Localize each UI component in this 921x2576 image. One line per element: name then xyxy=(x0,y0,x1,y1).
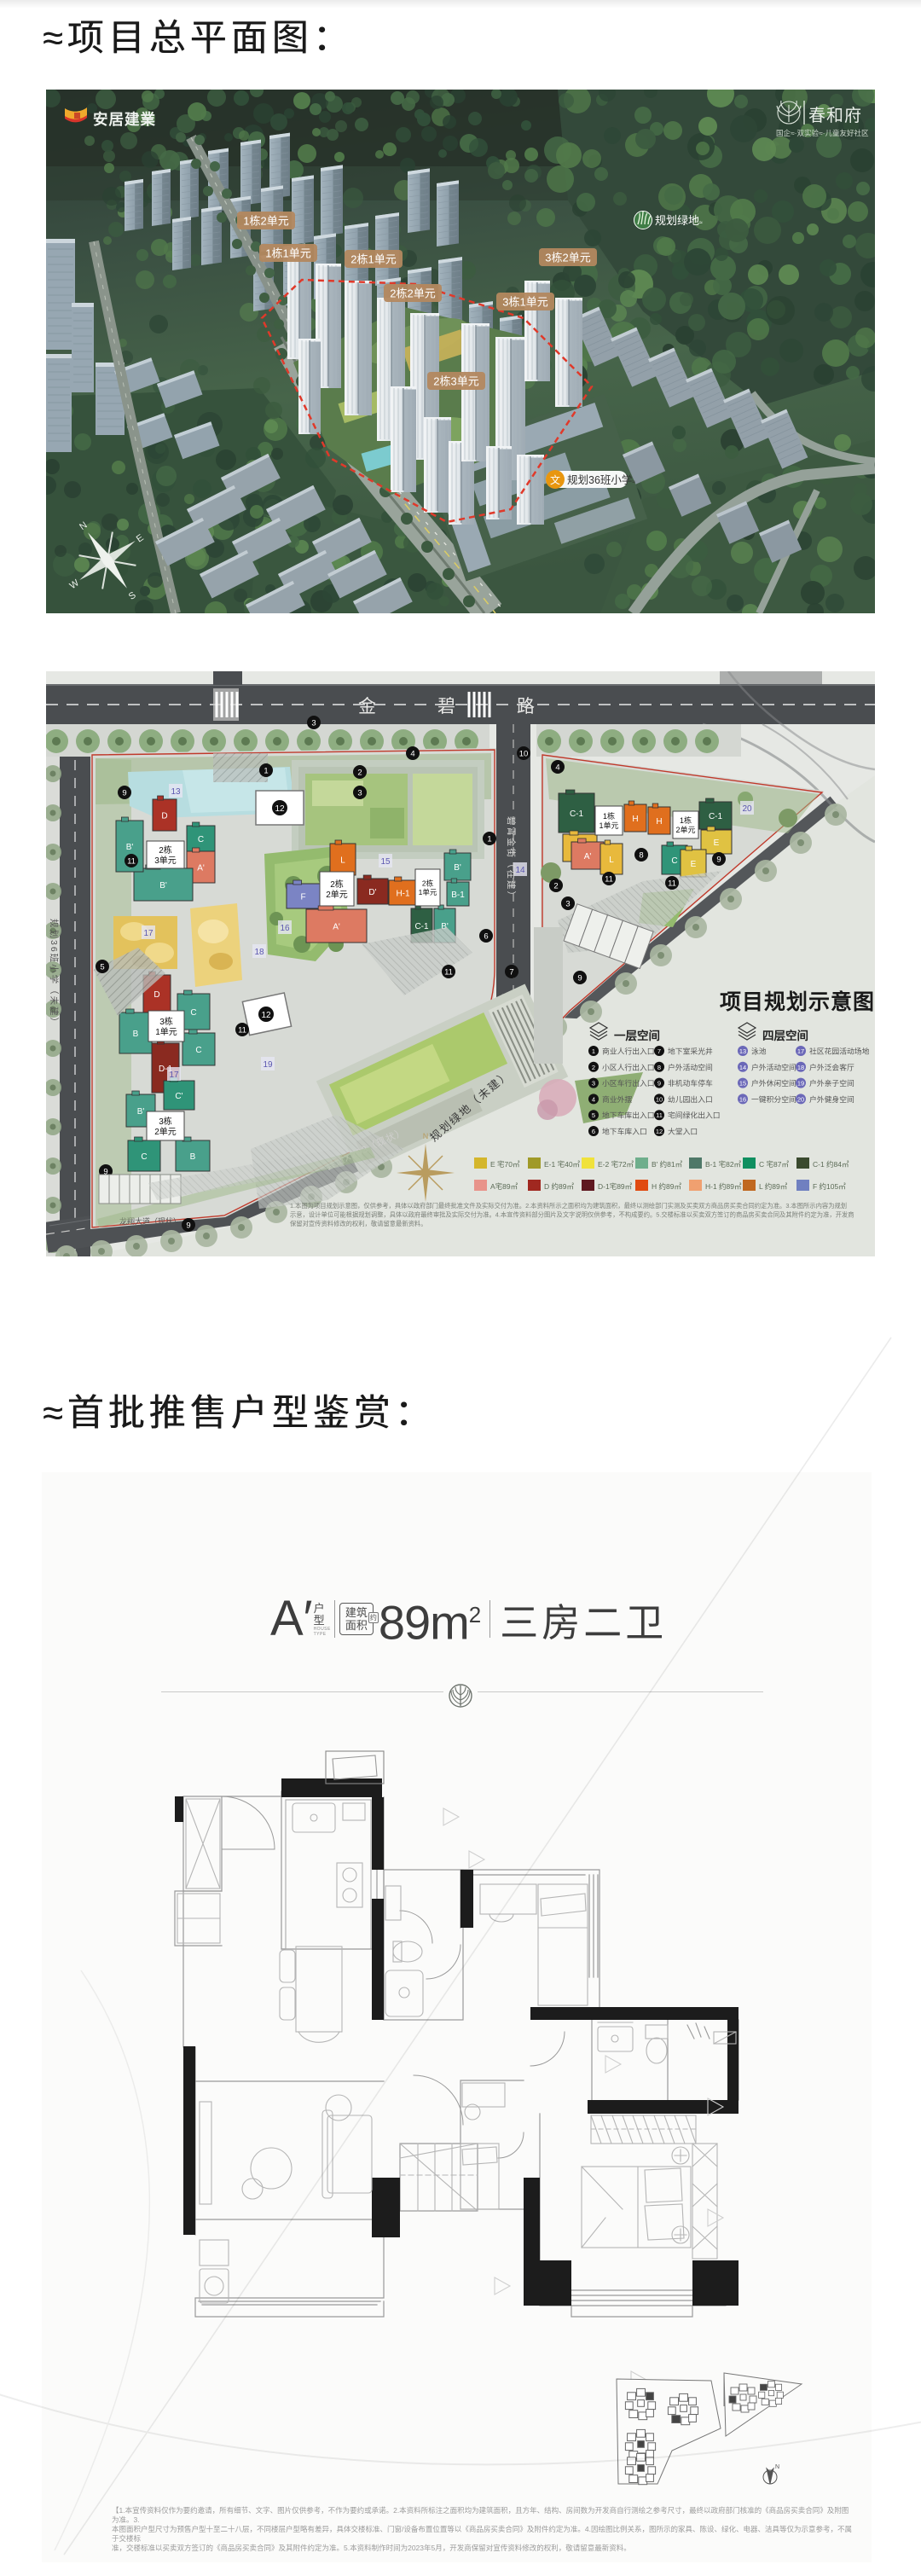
svg-text:E: E xyxy=(691,860,697,869)
svg-text:C-1: C-1 xyxy=(709,812,723,821)
svg-text:4: 4 xyxy=(592,1095,595,1103)
svg-text:1栋1单元: 1栋1单元 xyxy=(265,247,310,260)
svg-text:18: 18 xyxy=(797,1064,804,1071)
svg-text:D 约89㎡: D 约89㎡ xyxy=(544,1182,574,1191)
svg-text:A': A' xyxy=(333,923,340,932)
svg-text:D': D' xyxy=(368,888,376,897)
svg-text:国企≈·双实验≈·儿童友好社区: 国企≈·双实验≈·儿童友好社区 xyxy=(776,129,869,137)
svg-text:安居建業: 安居建業 xyxy=(93,111,156,128)
svg-text:地下室采光井: 地下室采光井 xyxy=(668,1047,713,1056)
svg-text:H-1: H-1 xyxy=(396,890,410,899)
svg-text:16: 16 xyxy=(739,1095,746,1103)
svg-text:规划36班小学（未建）: 规划36班小学（未建） xyxy=(49,919,60,1028)
svg-text:H 约89㎡: H 约89㎡ xyxy=(652,1182,681,1191)
svg-text:大堂入口: 大堂入口 xyxy=(668,1127,698,1136)
svg-text:17: 17 xyxy=(169,1070,179,1080)
svg-text:3栋1单元: 3栋1单元 xyxy=(502,296,547,309)
svg-text:户外泛会客厅: 户外泛会客厅 xyxy=(809,1062,854,1071)
svg-text:2栋: 2栋 xyxy=(330,879,344,890)
svg-text:B': B' xyxy=(137,1107,145,1117)
svg-text:一键积分空间: 一键积分空间 xyxy=(751,1094,796,1104)
svg-text:春和府: 春和府 xyxy=(808,106,862,125)
svg-text:E: E xyxy=(714,838,720,848)
svg-text:小区人行出入口: 小区人行出入口 xyxy=(602,1062,655,1071)
svg-text:3: 3 xyxy=(311,719,316,728)
svg-text:1栋: 1栋 xyxy=(603,811,615,821)
svg-text:户外健身空间: 户外健身空间 xyxy=(809,1094,854,1104)
svg-text:D: D xyxy=(161,812,167,821)
svg-text:2单元: 2单元 xyxy=(154,1127,177,1137)
svg-text:2: 2 xyxy=(553,882,558,891)
svg-text:12: 12 xyxy=(261,1011,271,1020)
svg-text:1栋2单元: 1栋2单元 xyxy=(243,215,288,228)
svg-text:C: C xyxy=(198,835,204,844)
svg-text:13: 13 xyxy=(739,1047,746,1055)
svg-text:B-1 宅82㎡: B-1 宅82㎡ xyxy=(705,1160,742,1169)
svg-text:1单元: 1单元 xyxy=(599,821,618,830)
svg-text:小区车行出入口: 小区车行出入口 xyxy=(602,1078,655,1088)
svg-text:8: 8 xyxy=(639,851,643,861)
svg-text:1: 1 xyxy=(264,767,268,776)
svg-text:B': B' xyxy=(126,843,134,852)
svg-text:一层空间: 一层空间 xyxy=(614,1029,660,1042)
svg-text:3栋: 3栋 xyxy=(159,1016,173,1027)
svg-text:20: 20 xyxy=(797,1095,804,1103)
svg-text:1单元: 1单元 xyxy=(155,1027,177,1037)
svg-text:文: 文 xyxy=(550,473,560,486)
svg-text:4: 4 xyxy=(410,750,414,759)
svg-text:B' 约81㎡: B' 约81㎡ xyxy=(652,1160,683,1169)
svg-text:B': B' xyxy=(454,863,461,873)
svg-text:9: 9 xyxy=(186,1221,190,1231)
svg-text:11: 11 xyxy=(668,879,676,889)
svg-text:D-1宅89㎡: D-1宅89㎡ xyxy=(598,1182,633,1191)
svg-text:19: 19 xyxy=(263,1060,273,1070)
svg-text:16: 16 xyxy=(280,924,290,933)
svg-text:6: 6 xyxy=(484,932,488,942)
svg-text:A宅89㎡: A宅89㎡ xyxy=(490,1182,518,1191)
svg-text:2栋: 2栋 xyxy=(159,844,172,856)
svg-text:L: L xyxy=(340,856,345,866)
svg-text:N: N xyxy=(423,1132,429,1140)
svg-text:幼儿园出入口: 幼儿园出入口 xyxy=(668,1094,713,1104)
svg-text:泳池: 泳池 xyxy=(751,1047,767,1056)
svg-text:8: 8 xyxy=(657,1064,661,1071)
svg-text:户外休闲空间: 户外休闲空间 xyxy=(751,1078,796,1088)
svg-text:地下车库入口: 地下车库入口 xyxy=(602,1127,647,1136)
svg-text:9: 9 xyxy=(657,1080,661,1088)
svg-text:17: 17 xyxy=(143,929,153,938)
svg-text:C: C xyxy=(190,1008,196,1018)
svg-text:四层空间: 四层空间 xyxy=(762,1029,808,1042)
svg-text:地下车库出入口: 地下车库出入口 xyxy=(602,1111,655,1120)
svg-text:2: 2 xyxy=(357,769,362,778)
svg-text:15: 15 xyxy=(739,1080,746,1088)
svg-text:H: H xyxy=(656,817,662,827)
svg-text:12: 12 xyxy=(275,804,285,814)
svg-text:3: 3 xyxy=(357,789,362,798)
svg-text:12: 12 xyxy=(656,1128,663,1135)
svg-text:14: 14 xyxy=(515,866,525,875)
svg-text:C-1: C-1 xyxy=(570,809,584,819)
svg-text:规划36班小学≈: 规划36班小学≈ xyxy=(567,473,635,486)
svg-text:1栋: 1栋 xyxy=(680,815,692,825)
svg-text:A': A' xyxy=(197,864,205,873)
svg-text:11: 11 xyxy=(605,875,613,885)
svg-text:金碧路: 金碧路 xyxy=(358,697,596,717)
svg-text:C': C' xyxy=(175,1092,182,1101)
svg-text:1: 1 xyxy=(487,835,491,844)
svg-text:B: B xyxy=(190,1152,196,1162)
svg-text:18: 18 xyxy=(254,948,264,957)
svg-text:1: 1 xyxy=(592,1047,595,1055)
svg-text:户外活动空间: 户外活动空间 xyxy=(751,1062,796,1071)
svg-text:户外活动空间: 户外活动空间 xyxy=(668,1062,713,1071)
svg-text:9: 9 xyxy=(122,789,126,798)
svg-text:B: B xyxy=(133,1030,139,1039)
svg-text:A': A' xyxy=(584,852,592,862)
svg-text:C: C xyxy=(671,856,677,866)
svg-text:2: 2 xyxy=(592,1064,595,1071)
svg-text:H: H xyxy=(632,815,638,824)
svg-text:4: 4 xyxy=(555,763,559,773)
svg-text:商业人行出入口: 商业人行出入口 xyxy=(602,1047,655,1056)
svg-text:6: 6 xyxy=(592,1128,595,1135)
svg-text:5: 5 xyxy=(592,1111,595,1119)
svg-text:户外亲子空间: 户外亲子空间 xyxy=(809,1078,854,1088)
svg-text:2栋: 2栋 xyxy=(422,879,434,888)
svg-text:L: L xyxy=(609,856,614,865)
svg-text:商业外摆: 商业外摆 xyxy=(602,1094,632,1104)
svg-text:15: 15 xyxy=(380,857,391,867)
svg-text:13: 13 xyxy=(171,787,181,797)
svg-text:17: 17 xyxy=(797,1047,804,1055)
svg-text:1单元: 1单元 xyxy=(419,888,437,896)
svg-text:B': B' xyxy=(159,881,167,891)
svg-text:F: F xyxy=(300,893,305,902)
svg-text:2单元: 2单元 xyxy=(675,825,695,834)
svg-text:3: 3 xyxy=(565,900,570,909)
svg-text:非机动车停车: 非机动车停车 xyxy=(668,1078,713,1088)
svg-text:C: C xyxy=(195,1046,201,1055)
svg-text:11: 11 xyxy=(238,1026,246,1036)
svg-text:10: 10 xyxy=(519,750,529,759)
svg-text:F 约105㎡: F 约105㎡ xyxy=(813,1182,846,1191)
svg-text:D: D xyxy=(153,990,159,1000)
svg-text:2单元: 2单元 xyxy=(326,890,348,900)
svg-text:保留对宣传资料修改的权利，敬请留意最新资料。: 保留对宣传资料修改的权利，敬请留意最新资料。 xyxy=(290,1220,427,1227)
svg-text:E 宅70㎡: E 宅70㎡ xyxy=(490,1160,520,1169)
svg-text:宅间绿化出入口: 宅间绿化出入口 xyxy=(668,1111,721,1120)
svg-text:11: 11 xyxy=(656,1111,663,1119)
svg-text:7: 7 xyxy=(509,968,513,978)
svg-text:L 约89㎡: L 约89㎡ xyxy=(759,1182,788,1191)
svg-text:C: C xyxy=(141,1152,147,1162)
svg-text:2栋3单元: 2栋3单元 xyxy=(433,375,478,388)
svg-text:2栋1单元: 2栋1单元 xyxy=(350,253,396,266)
svg-text:3: 3 xyxy=(592,1080,595,1088)
svg-text:C-1: C-1 xyxy=(414,922,429,931)
svg-text:1.本图为项目规划示意图，仅供参考，具体以政府部门最终批准文: 1.本图为项目规划示意图，仅供参考，具体以政府部门最终批准文件及实际交付为准。2… xyxy=(290,1202,847,1210)
svg-text:9: 9 xyxy=(716,856,721,865)
svg-text:E-1 宅40㎡: E-1 宅40㎡ xyxy=(544,1160,581,1169)
svg-text:10: 10 xyxy=(656,1095,663,1103)
svg-text:H-1 约89㎡: H-1 约89㎡ xyxy=(705,1182,742,1191)
svg-text:项目规划示意图: 项目规划示意图 xyxy=(720,989,875,1014)
svg-text:19: 19 xyxy=(797,1080,804,1088)
svg-text:14: 14 xyxy=(739,1064,746,1071)
svg-text:碧霄金街（在建）: 碧霄金街（在建） xyxy=(506,816,517,902)
svg-text:3栋2单元: 3栋2单元 xyxy=(545,252,590,264)
svg-text:B-1: B-1 xyxy=(451,891,465,900)
svg-text:社区花园活动场地: 社区花园活动场地 xyxy=(809,1047,870,1056)
svg-text:规划绿地≈: 规划绿地≈ xyxy=(655,214,703,227)
svg-text:11: 11 xyxy=(444,968,453,978)
svg-text:C-1 约84㎡: C-1 约84㎡ xyxy=(813,1160,849,1169)
svg-text:9: 9 xyxy=(577,974,582,983)
svg-text:2栋2单元: 2栋2单元 xyxy=(390,287,435,300)
svg-text:7: 7 xyxy=(657,1047,661,1055)
svg-text:3栋: 3栋 xyxy=(159,1116,172,1127)
svg-text:C 宅87㎡: C 宅87㎡ xyxy=(759,1160,789,1169)
svg-text:3单元: 3单元 xyxy=(154,856,177,866)
svg-text:示意，设计单位可能根据规划调整，具体以政府最终审批及实际交付: 示意，设计单位可能根据规划调整，具体以政府最终审批及实际交付为准。4.本宣传资料… xyxy=(290,1211,854,1219)
svg-text:11: 11 xyxy=(127,857,136,867)
svg-text:E-2 宅72㎡: E-2 宅72㎡ xyxy=(598,1160,634,1169)
svg-text:5: 5 xyxy=(100,963,104,972)
svg-text:20: 20 xyxy=(742,804,752,814)
